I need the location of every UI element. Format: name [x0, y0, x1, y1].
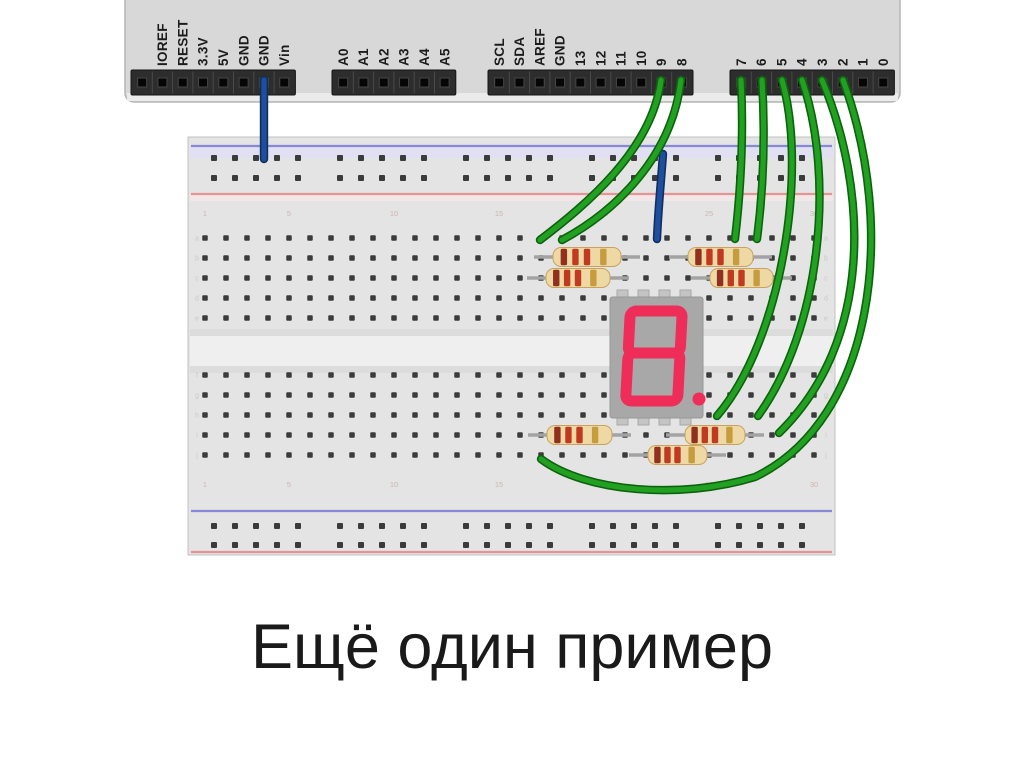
breadboard-hole	[538, 392, 544, 398]
breadboard-hole	[736, 542, 742, 548]
breadboard-hole	[589, 175, 595, 181]
breadboard-hole	[778, 175, 784, 181]
pin-label-7: 7	[734, 58, 749, 66]
breadboard-hole	[223, 235, 229, 241]
header-pin-RESET	[178, 78, 187, 87]
breadboard-hole	[265, 432, 271, 438]
breadboard-hole	[253, 523, 259, 529]
breadboard-hole	[379, 155, 385, 161]
breadboard-hole	[400, 523, 406, 529]
breadboard-hole	[790, 432, 796, 438]
breadboard-hole	[328, 295, 334, 301]
breadboard-hole	[391, 392, 397, 398]
breadboard-hole	[580, 372, 586, 378]
breadboard-hole	[286, 275, 292, 281]
breadboard-hole	[505, 155, 511, 161]
breadboard-hole	[391, 372, 397, 378]
breadboard-hole	[484, 175, 490, 181]
breadboard-hole	[715, 542, 721, 548]
breadboard-hole	[328, 372, 334, 378]
row-mark: c	[824, 276, 828, 283]
breadboard-hole	[496, 315, 502, 321]
breadboard-hole	[559, 372, 565, 378]
breadboard-hole	[223, 295, 229, 301]
breadboard-hole	[643, 275, 649, 281]
breadboard-hole	[232, 542, 238, 548]
resistor-band	[575, 270, 581, 287]
resistor-band	[584, 249, 590, 266]
breadboard-hole	[811, 372, 817, 378]
seven-segment-display	[610, 290, 706, 425]
breadboard-hole	[748, 392, 754, 398]
breadboard-hole	[547, 542, 553, 548]
breadboard-hole	[412, 412, 418, 418]
breadboard-hole	[799, 175, 805, 181]
breadboard-hole	[370, 452, 376, 458]
breadboard-hole	[349, 315, 355, 321]
breadboard-hole	[244, 452, 250, 458]
breadboard-hole	[580, 412, 586, 418]
column-mark: 10	[390, 209, 398, 218]
breadboard-hole	[433, 432, 439, 438]
breadboard-hole	[265, 452, 271, 458]
breadboard-hole	[400, 155, 406, 161]
resistor-band	[654, 447, 660, 464]
breadboard-hole	[202, 295, 208, 301]
pin-label-13: 13	[573, 50, 588, 66]
breadboard-hole	[538, 295, 544, 301]
display-decimal-point	[693, 393, 706, 406]
breadboard-hole	[295, 155, 301, 161]
breadboard-hole	[244, 432, 250, 438]
resistor-band	[564, 270, 570, 287]
header-pin-11	[616, 78, 625, 87]
header-pin-5V	[219, 78, 228, 87]
breadboard-hole	[526, 175, 532, 181]
pin-label-RESET: RESET	[175, 19, 190, 66]
breadboard-hole	[349, 412, 355, 418]
breadboard-hole	[580, 295, 586, 301]
breadboard-hole	[412, 372, 418, 378]
breadboard-hole	[433, 235, 439, 241]
breadboard-hole	[664, 255, 670, 261]
breadboard-hole	[223, 315, 229, 321]
breadboard-hole	[790, 255, 796, 261]
breadboard-hole	[391, 295, 397, 301]
column-mark: 30	[810, 480, 818, 489]
breadboard-hole	[727, 295, 733, 301]
breadboard-hole	[223, 372, 229, 378]
breadboard-hole	[286, 295, 292, 301]
row-mark: j	[824, 453, 827, 460]
breadboard-hole	[622, 235, 628, 241]
breadboard-hole	[307, 275, 313, 281]
breadboard-hole	[307, 412, 313, 418]
breadboard-hole	[349, 255, 355, 261]
breadboard-hole	[349, 432, 355, 438]
resistor-band	[576, 427, 582, 444]
breadboard-hole	[391, 235, 397, 241]
breadboard-hole	[328, 255, 334, 261]
breadboard-hole	[337, 155, 343, 161]
resistor-band	[590, 270, 596, 287]
breadboard-hole	[715, 523, 721, 529]
resistor-band	[733, 249, 739, 266]
breadboard-hole	[517, 392, 523, 398]
breadboard-hole	[370, 392, 376, 398]
breadboard-hole	[517, 412, 523, 418]
breadboard-hole	[274, 542, 280, 548]
breadboard-hole	[454, 372, 460, 378]
breadboard-hole	[643, 432, 649, 438]
pin-label-0: 0	[876, 58, 891, 66]
pin-label-Vin: Vin	[277, 44, 292, 66]
breadboard-hole	[328, 235, 334, 241]
breadboard-hole	[748, 452, 754, 458]
breadboard-hole	[454, 392, 460, 398]
breadboard-hole	[421, 523, 427, 529]
column-mark: 25	[705, 209, 713, 218]
breadboard-hole	[799, 155, 805, 161]
breadboard-hole	[412, 432, 418, 438]
breadboard-hole	[769, 432, 775, 438]
pin-label-A5: A5	[437, 48, 452, 66]
breadboard-hole	[643, 235, 649, 241]
breadboard-hole	[391, 452, 397, 458]
breadboard-hole	[328, 412, 334, 418]
breadboard-hole	[412, 255, 418, 261]
header-pin-IOREF	[158, 78, 167, 87]
breadboard-hole	[433, 275, 439, 281]
breadboard-hole	[706, 392, 712, 398]
breadboard-hole	[769, 412, 775, 418]
breadboard-hole	[601, 372, 607, 378]
breadboard-hole	[589, 523, 595, 529]
breadboard-hole	[748, 295, 754, 301]
header-pin-A1	[359, 78, 368, 87]
resistor-band	[695, 249, 701, 266]
breadboard-hole	[601, 235, 607, 241]
breadboard-hole	[370, 315, 376, 321]
breadboard-hole	[211, 155, 217, 161]
breadboard-hole	[715, 155, 721, 161]
pin-label-SCL: SCL	[492, 38, 507, 66]
breadboard-hole	[463, 155, 469, 161]
breadboard-hole	[433, 452, 439, 458]
breadboard-hole	[223, 255, 229, 261]
breadboard-hole	[652, 523, 658, 529]
pin-label-12: 12	[593, 50, 608, 66]
breadboard-hole	[433, 295, 439, 301]
breadboard-hole	[475, 255, 481, 261]
breadboard-hole	[307, 392, 313, 398]
breadboard-hole	[253, 155, 259, 161]
breadboard-hole	[244, 315, 250, 321]
breadboard-hole	[400, 175, 406, 181]
row-mark: f	[196, 373, 198, 380]
breadboard-hole	[265, 412, 271, 418]
breadboard-hole	[328, 432, 334, 438]
breadboard-hole	[328, 452, 334, 458]
breadboard-hole	[673, 523, 679, 529]
breadboard-hole	[286, 315, 292, 321]
breadboard-hole	[517, 432, 523, 438]
breadboard-hole	[349, 275, 355, 281]
breadboard-hole	[223, 432, 229, 438]
breadboard-hole	[706, 295, 712, 301]
breadboard-hole	[358, 155, 364, 161]
breadboard-hole	[559, 412, 565, 418]
row-mark: a	[824, 236, 828, 243]
pin-label-3: 3	[815, 58, 830, 66]
breadboard-hole	[433, 412, 439, 418]
breadboard-hole	[274, 175, 280, 181]
breadboard-hole	[211, 542, 217, 548]
breadboard-hole	[631, 523, 637, 529]
breadboard-hole	[706, 315, 712, 321]
breadboard-hole	[727, 412, 733, 418]
breadboard-hole	[748, 315, 754, 321]
breadboard-hole	[580, 235, 586, 241]
pin-label-GND: GND	[236, 35, 251, 66]
breadboard-hole	[202, 392, 208, 398]
breadboard-hole	[790, 392, 796, 398]
breadboard-hole	[757, 523, 763, 529]
breadboard-hole	[307, 295, 313, 301]
breadboard-hole	[274, 523, 280, 529]
resistor-band	[691, 427, 697, 444]
breadboard-hole	[202, 275, 208, 281]
breadboard-hole	[496, 372, 502, 378]
breadboard-hole	[295, 175, 301, 181]
breadboard-hole	[202, 315, 208, 321]
breadboard-hole	[475, 295, 481, 301]
circuit-diagram: IOREFRESET3.3V5VGNDGNDVinA0A1A2A3A4A5SCL…	[0, 0, 1024, 580]
breadboard-hole	[463, 523, 469, 529]
breadboard-hole	[580, 392, 586, 398]
breadboard-hole	[769, 372, 775, 378]
breadboard-hole	[790, 372, 796, 378]
breadboard-hole	[496, 412, 502, 418]
breadboard-hole	[223, 412, 229, 418]
breadboard-hole	[391, 255, 397, 261]
breadboard-hole	[706, 412, 712, 418]
breadboard-hole	[526, 523, 532, 529]
breadboard-hole	[475, 432, 481, 438]
breadboard-hole	[538, 412, 544, 418]
row-mark: b	[824, 256, 828, 263]
header-pin-AREF	[535, 78, 544, 87]
breadboard-hole	[673, 155, 679, 161]
breadboard-hole	[286, 372, 292, 378]
breadboard-hole	[475, 275, 481, 281]
breadboard-hole	[202, 235, 208, 241]
breadboard-hole	[601, 315, 607, 321]
breadboard-hole	[370, 412, 376, 418]
breadboard-hole	[412, 295, 418, 301]
breadboard-hole	[517, 452, 523, 458]
breadboard-hole	[517, 275, 523, 281]
breadboard-hole	[547, 523, 553, 529]
header-pin-3.3V	[199, 78, 208, 87]
breadboard-hole	[610, 542, 616, 548]
breadboard-hole	[370, 432, 376, 438]
resistor-band	[712, 427, 718, 444]
breadboard-hole	[286, 235, 292, 241]
breadboard-hole	[547, 155, 553, 161]
breadboard-hole	[433, 315, 439, 321]
breadboard-hole	[496, 275, 502, 281]
breadboard-hole	[601, 452, 607, 458]
breadboard-hole	[631, 542, 637, 548]
breadboard-hole	[505, 542, 511, 548]
breadboard-hole	[601, 392, 607, 398]
breadboard-hole	[454, 235, 460, 241]
breadboard-hole	[307, 315, 313, 321]
breadboard-hole	[517, 235, 523, 241]
breadboard-hole	[811, 452, 817, 458]
breadboard-hole	[496, 235, 502, 241]
breadboard-hole	[727, 315, 733, 321]
breadboard-hole	[265, 255, 271, 261]
resistor-band	[592, 427, 598, 444]
breadboard-hole	[799, 523, 805, 529]
breadboard-hole	[580, 452, 586, 458]
pin-label-IOREF: IOREF	[155, 23, 170, 66]
breadboard-hole	[589, 155, 595, 161]
breadboard-hole	[349, 235, 355, 241]
breadboard-hole	[475, 392, 481, 398]
breadboard-hole	[337, 175, 343, 181]
breadboard-hole	[811, 315, 817, 321]
breadboard-hole	[421, 155, 427, 161]
header-pin-A4	[420, 78, 429, 87]
breadboard-hole	[778, 542, 784, 548]
breadboard-hole	[358, 542, 364, 548]
resistor-band	[753, 270, 759, 287]
header-pin-A3	[400, 78, 409, 87]
breadboard-hole	[463, 542, 469, 548]
breadboard-hole	[412, 392, 418, 398]
resistor-band	[738, 270, 744, 287]
breadboard-hole	[244, 295, 250, 301]
breadboard-hole	[349, 295, 355, 301]
breadboard-hole	[463, 175, 469, 181]
breadboard-hole	[433, 392, 439, 398]
resistor-band	[717, 249, 723, 266]
breadboard-hole	[589, 542, 595, 548]
pin-label-A0: A0	[336, 48, 351, 66]
header-pin-SCL	[495, 78, 504, 87]
resistor-band	[728, 270, 734, 287]
header-pin-1	[858, 78, 867, 87]
pin-label-GND: GND	[257, 35, 272, 66]
breadboard-hole	[286, 255, 292, 261]
resistor-band	[565, 427, 571, 444]
breadboard-hole	[202, 452, 208, 458]
breadboard-hole	[517, 372, 523, 378]
breadboard-hole	[664, 235, 670, 241]
breadboard-hole	[412, 235, 418, 241]
breadboard-hole	[757, 542, 763, 548]
breadboard-hole	[307, 372, 313, 378]
breadboard-hole	[295, 523, 301, 529]
breadboard-hole	[265, 372, 271, 378]
resistor-band	[561, 249, 567, 266]
breadboard-hole	[559, 452, 565, 458]
column-mark: 15	[495, 209, 503, 218]
breadboard-hole	[307, 255, 313, 261]
header-pin-A5	[440, 78, 449, 87]
breadboard-hole	[496, 432, 502, 438]
breadboard-hole	[337, 523, 343, 529]
breadboard-hole	[811, 412, 817, 418]
header-pin-A0	[339, 78, 348, 87]
breadboard-hole	[286, 392, 292, 398]
breadboard-hole	[538, 315, 544, 321]
breadboard-hole	[307, 235, 313, 241]
breadboard-hole	[265, 315, 271, 321]
pin-label-10: 10	[634, 50, 649, 66]
breadboard-hole	[211, 175, 217, 181]
pin-label-11: 11	[614, 51, 629, 66]
breadboard-hole	[538, 372, 544, 378]
breadboard-hole	[505, 523, 511, 529]
breadboard-hole	[580, 315, 586, 321]
breadboard-hole	[307, 452, 313, 458]
pin-label-5: 5	[774, 58, 789, 66]
row-mark: j	[195, 453, 198, 460]
breadboard-hole	[337, 542, 343, 548]
breadboard-hole	[433, 255, 439, 261]
breadboard-hole	[610, 155, 616, 161]
pin-label-9: 9	[654, 58, 669, 66]
breadboard-hole	[778, 155, 784, 161]
row-mark: d	[824, 296, 828, 303]
breadboard-hole	[232, 155, 238, 161]
breadboard-hole	[202, 432, 208, 438]
pin-label-A1: A1	[356, 48, 371, 66]
column-mark: 1	[203, 480, 207, 489]
breadboard-hole	[379, 175, 385, 181]
pin-label-6: 6	[754, 58, 769, 66]
breadboard-hole	[559, 315, 565, 321]
breadboard-hole	[379, 523, 385, 529]
breadboard-hole	[496, 392, 502, 398]
breadboard-hole	[328, 315, 334, 321]
breadboard-hole	[286, 412, 292, 418]
pin-label-AREF: AREF	[532, 28, 547, 66]
breadboard-hole	[370, 275, 376, 281]
breadboard-hole	[265, 275, 271, 281]
header-pin-Vin	[280, 78, 289, 87]
pin-label-5V: 5V	[216, 49, 231, 66]
resistor-band	[600, 249, 606, 266]
resistor-band	[702, 427, 708, 444]
breadboard-hole	[484, 523, 490, 529]
breadboard-hole	[622, 452, 628, 458]
breadboard-hole	[211, 523, 217, 529]
breadboard-hole	[232, 175, 238, 181]
pin-label-SDA: SDA	[512, 37, 527, 66]
header-pin-0	[879, 78, 888, 87]
breadboard-hole	[526, 155, 532, 161]
breadboard-hole	[412, 452, 418, 458]
breadboard-hole	[601, 412, 607, 418]
row-mark: g	[195, 393, 199, 400]
breadboard-hole	[244, 235, 250, 241]
breadboard-hole	[736, 523, 742, 529]
